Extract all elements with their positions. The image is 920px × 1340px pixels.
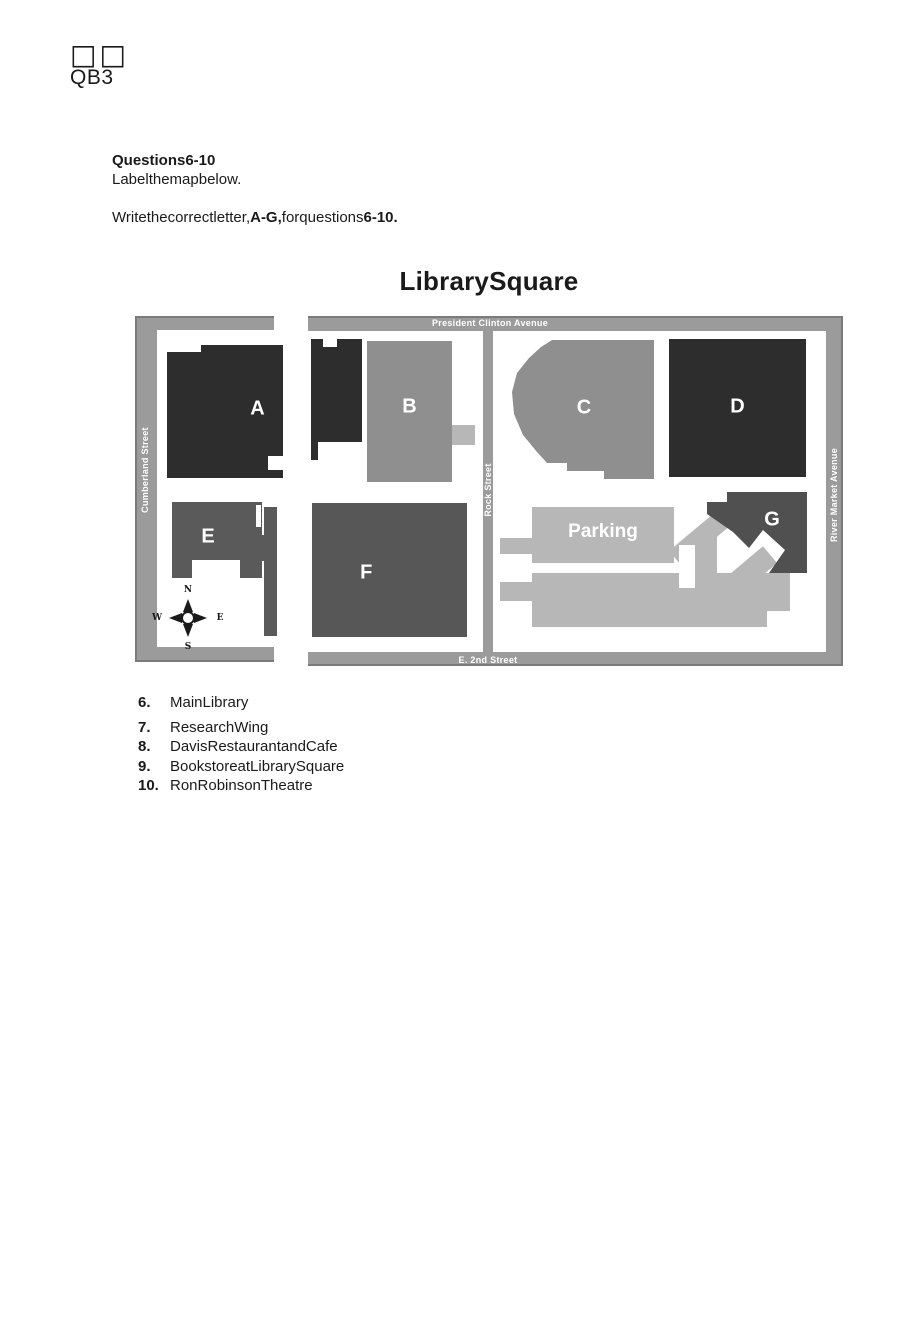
street-band-e-2nd bbox=[308, 652, 841, 664]
street-label-river-market: River Market Avenue bbox=[827, 430, 841, 560]
building-D: D bbox=[669, 339, 806, 477]
street-band-bottom-left bbox=[137, 647, 274, 660]
question-range: 6-10. bbox=[364, 209, 398, 226]
building-E-wing bbox=[264, 507, 277, 636]
street-label-rock: Rock Street bbox=[481, 425, 495, 555]
question-row: 10. RonRobinsonTheatre bbox=[138, 776, 344, 796]
building-E-wing-connector bbox=[259, 535, 266, 561]
write-letter-instruction: Writethecorrectletter,A-G,forquestions6-… bbox=[112, 208, 398, 227]
street-label-e-2nd: E. 2nd Street bbox=[433, 655, 543, 665]
compass-label-e: E bbox=[217, 613, 224, 623]
building-A: A bbox=[167, 345, 283, 478]
building-E-label: E bbox=[201, 525, 214, 548]
question-text: MainLibrary bbox=[170, 693, 248, 713]
write-pre: Writethecorrectletter, bbox=[112, 209, 250, 226]
building-C-label: C bbox=[577, 396, 591, 419]
building-E-notch bbox=[192, 560, 240, 578]
question-row: 7. ResearchWing bbox=[138, 718, 344, 738]
building-F-label: F bbox=[360, 561, 372, 584]
parking-white-slit bbox=[679, 545, 695, 588]
question-text: DavisRestaurantandCafe bbox=[170, 737, 338, 757]
compass-label-s: S bbox=[185, 642, 192, 652]
building-fragment-left-of-B bbox=[311, 339, 362, 460]
compass-east-arrow-icon bbox=[194, 613, 207, 623]
question-number: 9. bbox=[138, 757, 170, 777]
building-A-notch bbox=[268, 456, 283, 470]
compass-label-w: W bbox=[152, 613, 162, 623]
instruction-line: Labelthemapbelow. bbox=[112, 170, 398, 189]
questions-heading: Questions6-10 bbox=[112, 151, 398, 170]
compass-rose: N S W E bbox=[168, 598, 208, 638]
building-E: E bbox=[172, 502, 262, 578]
compass-circle-icon bbox=[181, 611, 195, 625]
street-label-president-clinton: President Clinton Avenue bbox=[390, 318, 590, 328]
document-page: □□ QB3 Questions6-10 Labelthemapbelow. W… bbox=[0, 0, 920, 1340]
street-label-cumberland: Cumberland Street bbox=[138, 405, 152, 535]
question-row: 9. BookstoreatLibrarySquare bbox=[138, 757, 344, 777]
question-text: ResearchWing bbox=[170, 718, 268, 738]
building-B-annex bbox=[452, 425, 475, 445]
question-text: BookstoreatLibrarySquare bbox=[170, 757, 344, 777]
map-title: LibrarySquare bbox=[135, 266, 843, 297]
letter-range: A-G, bbox=[250, 209, 282, 226]
instructions-block: Questions6-10 Labelthemapbelow. Writethe… bbox=[112, 151, 398, 227]
building-D-label: D bbox=[730, 395, 744, 418]
compass-south-arrow-icon bbox=[183, 624, 193, 637]
question-number: 8. bbox=[138, 737, 170, 757]
parking-left-arm-lower bbox=[500, 582, 534, 601]
library-square-map: President Clinton Avenue E. 2nd Street C… bbox=[135, 313, 843, 666]
question-number: 7. bbox=[138, 718, 170, 738]
parking-corner-notch bbox=[767, 611, 792, 627]
compass-label-n: N bbox=[184, 585, 192, 595]
building-E-slit bbox=[256, 505, 261, 527]
building-B-label: B bbox=[402, 396, 416, 419]
write-mid: forquestions bbox=[282, 209, 364, 226]
questions-list: 6. MainLibrary 7. ResearchWing 8. DavisR… bbox=[138, 693, 344, 796]
question-row: 8. DavisRestaurantandCafe bbox=[138, 737, 344, 757]
question-row: 6. MainLibrary bbox=[138, 693, 344, 713]
building-A-label: A bbox=[250, 397, 264, 420]
parking-left-arm-upper bbox=[500, 538, 534, 554]
question-text: RonRobinsonTheatre bbox=[170, 776, 313, 796]
parking-label: Parking bbox=[568, 521, 638, 543]
building-F: F bbox=[312, 503, 467, 637]
header-code: QB3 bbox=[70, 66, 114, 90]
building-G-label: G bbox=[764, 508, 780, 531]
question-number: 6. bbox=[138, 693, 170, 713]
building-B: B bbox=[367, 341, 452, 482]
question-number: 10. bbox=[138, 776, 170, 796]
street-band-top-left bbox=[137, 318, 274, 330]
